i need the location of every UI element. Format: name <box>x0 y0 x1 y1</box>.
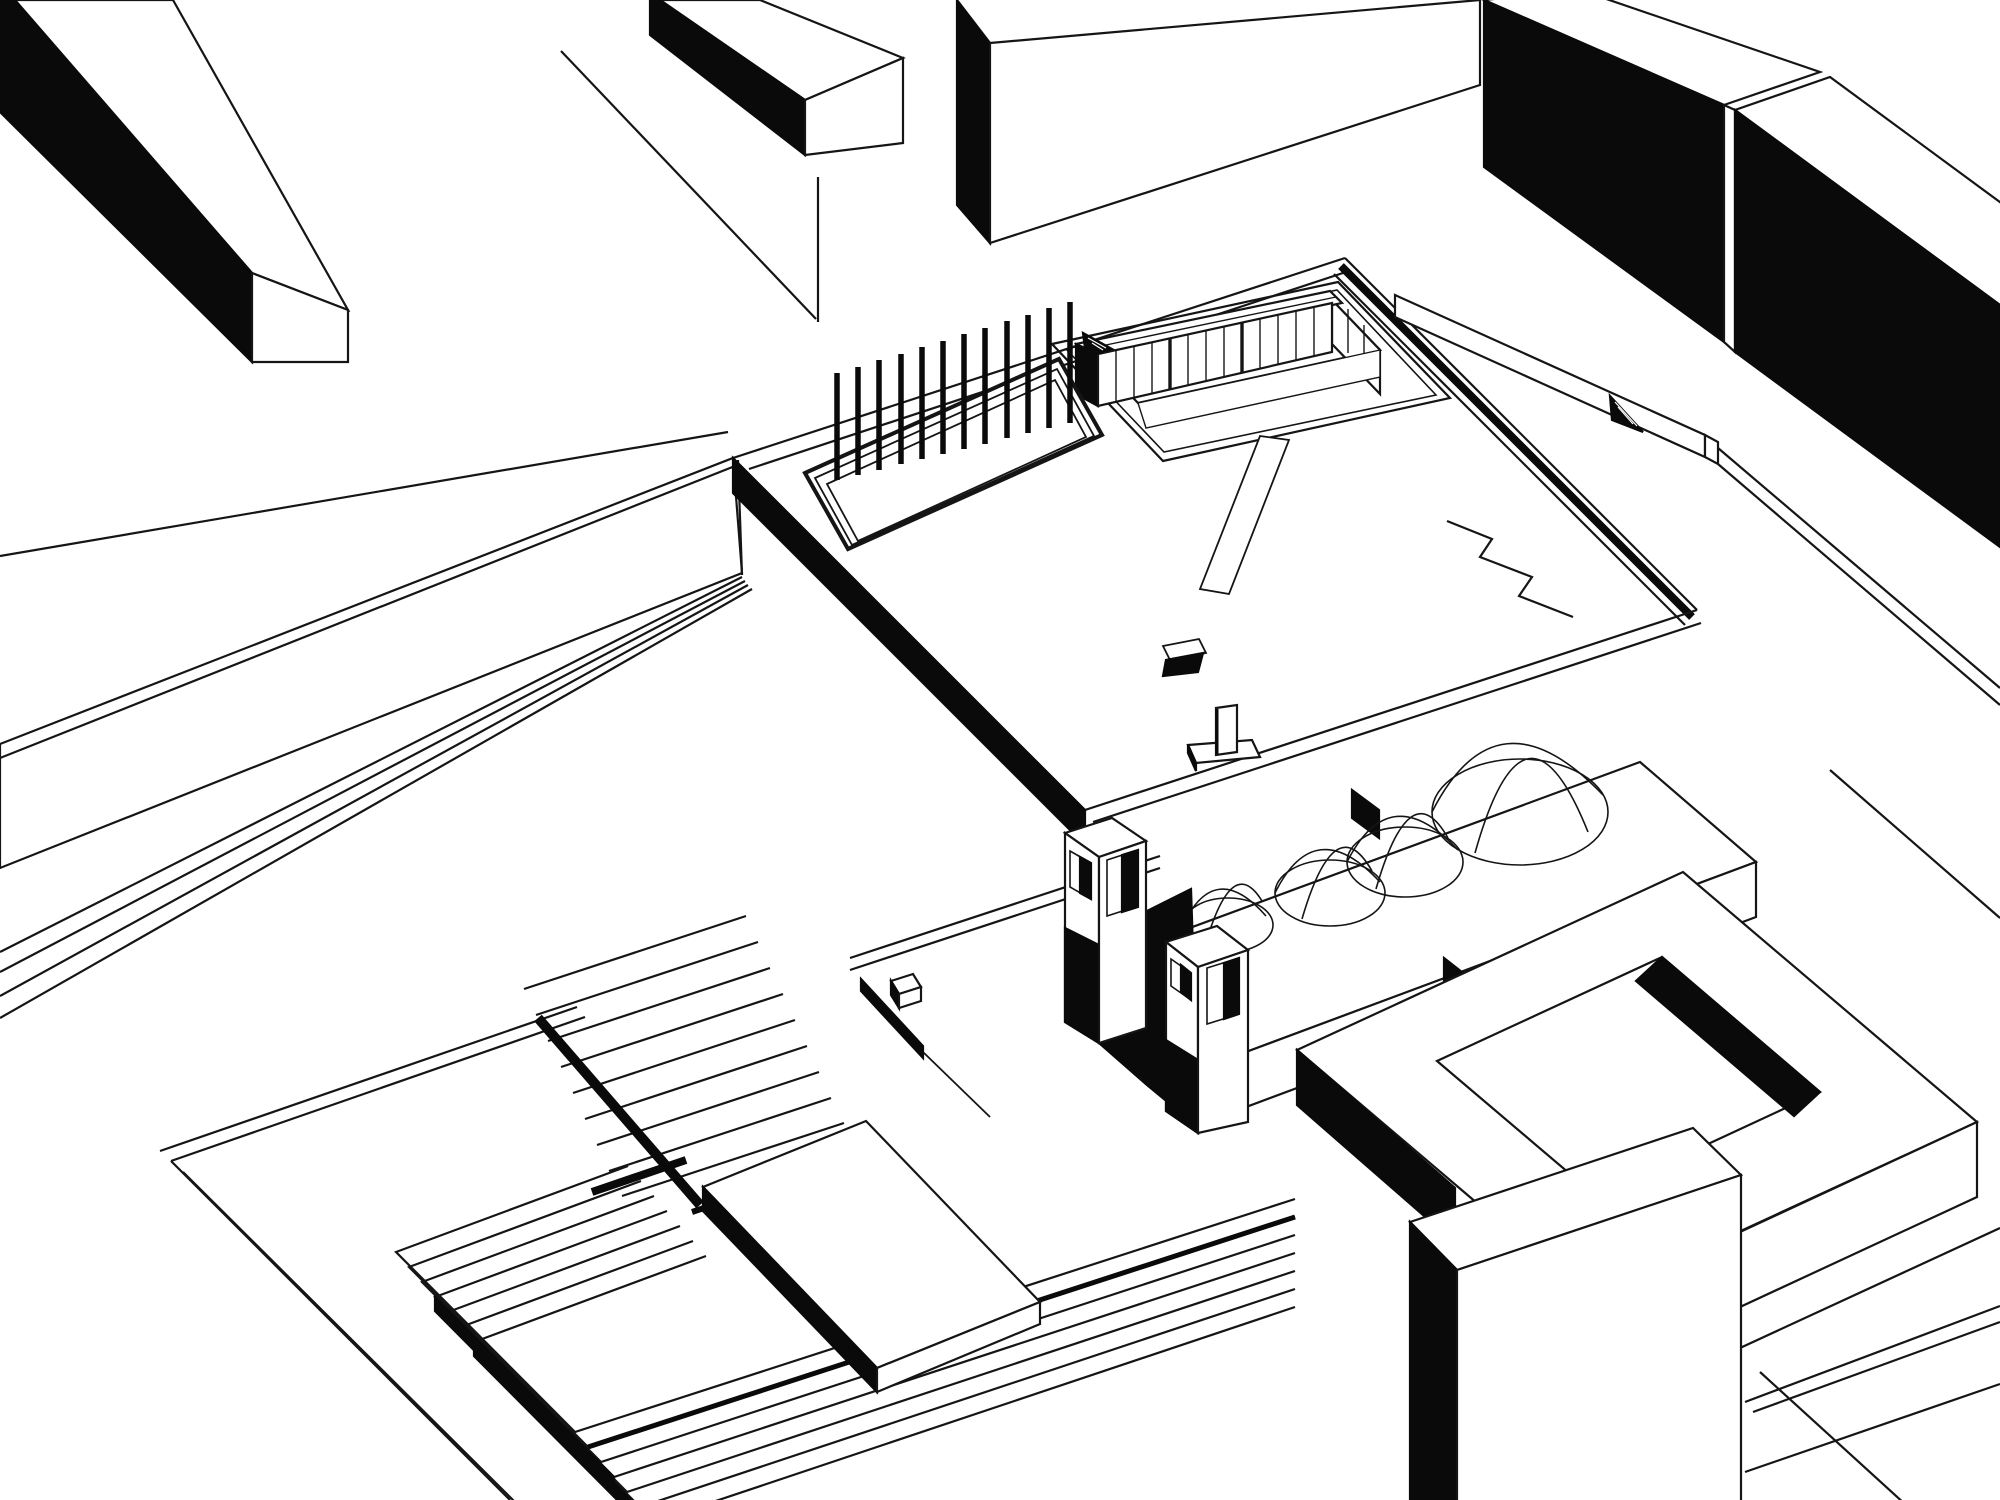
axonometric-site-plan-svg <box>0 0 2000 1500</box>
architectural-drawing-page <box>0 0 2000 1500</box>
tower-1-right-window-shadow <box>1122 850 1138 912</box>
stele-slab <box>1216 705 1237 755</box>
foreground-tower-shadow-face <box>1410 1222 1457 1500</box>
building-c-shadow-face <box>957 0 990 243</box>
tower-1-left-window-shadow <box>1080 857 1091 899</box>
tower-1-left-face-shadow <box>1065 928 1099 1043</box>
tower-2-right-window-shadow <box>1224 958 1239 1019</box>
building-e-gap-face <box>1724 105 1735 352</box>
